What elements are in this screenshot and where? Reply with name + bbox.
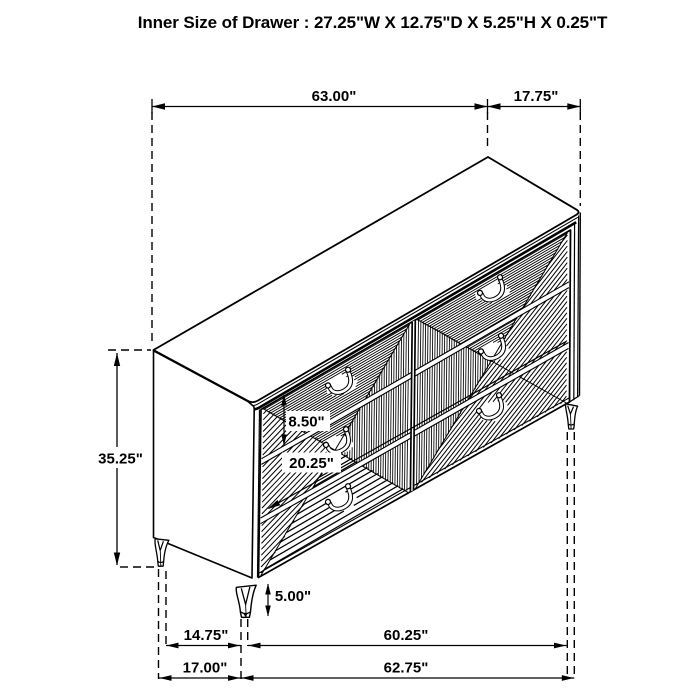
svg-text:17.75": 17.75" [514, 88, 559, 105]
svg-text:Inner Size of Drawer : 27.25"W: Inner Size of Drawer : 27.25"W X 12.75"D… [138, 13, 608, 32]
svg-text:14.75": 14.75" [184, 627, 229, 644]
svg-text:20.25": 20.25" [289, 455, 334, 472]
svg-text:8.50": 8.50" [288, 414, 324, 431]
svg-text:62.75": 62.75" [384, 660, 429, 677]
svg-text:63.00": 63.00" [312, 88, 357, 105]
svg-text:35.25": 35.25" [98, 451, 143, 468]
svg-text:5.00": 5.00" [275, 588, 311, 605]
svg-text:17.00": 17.00" [183, 660, 228, 677]
svg-text:60.25": 60.25" [384, 627, 429, 644]
